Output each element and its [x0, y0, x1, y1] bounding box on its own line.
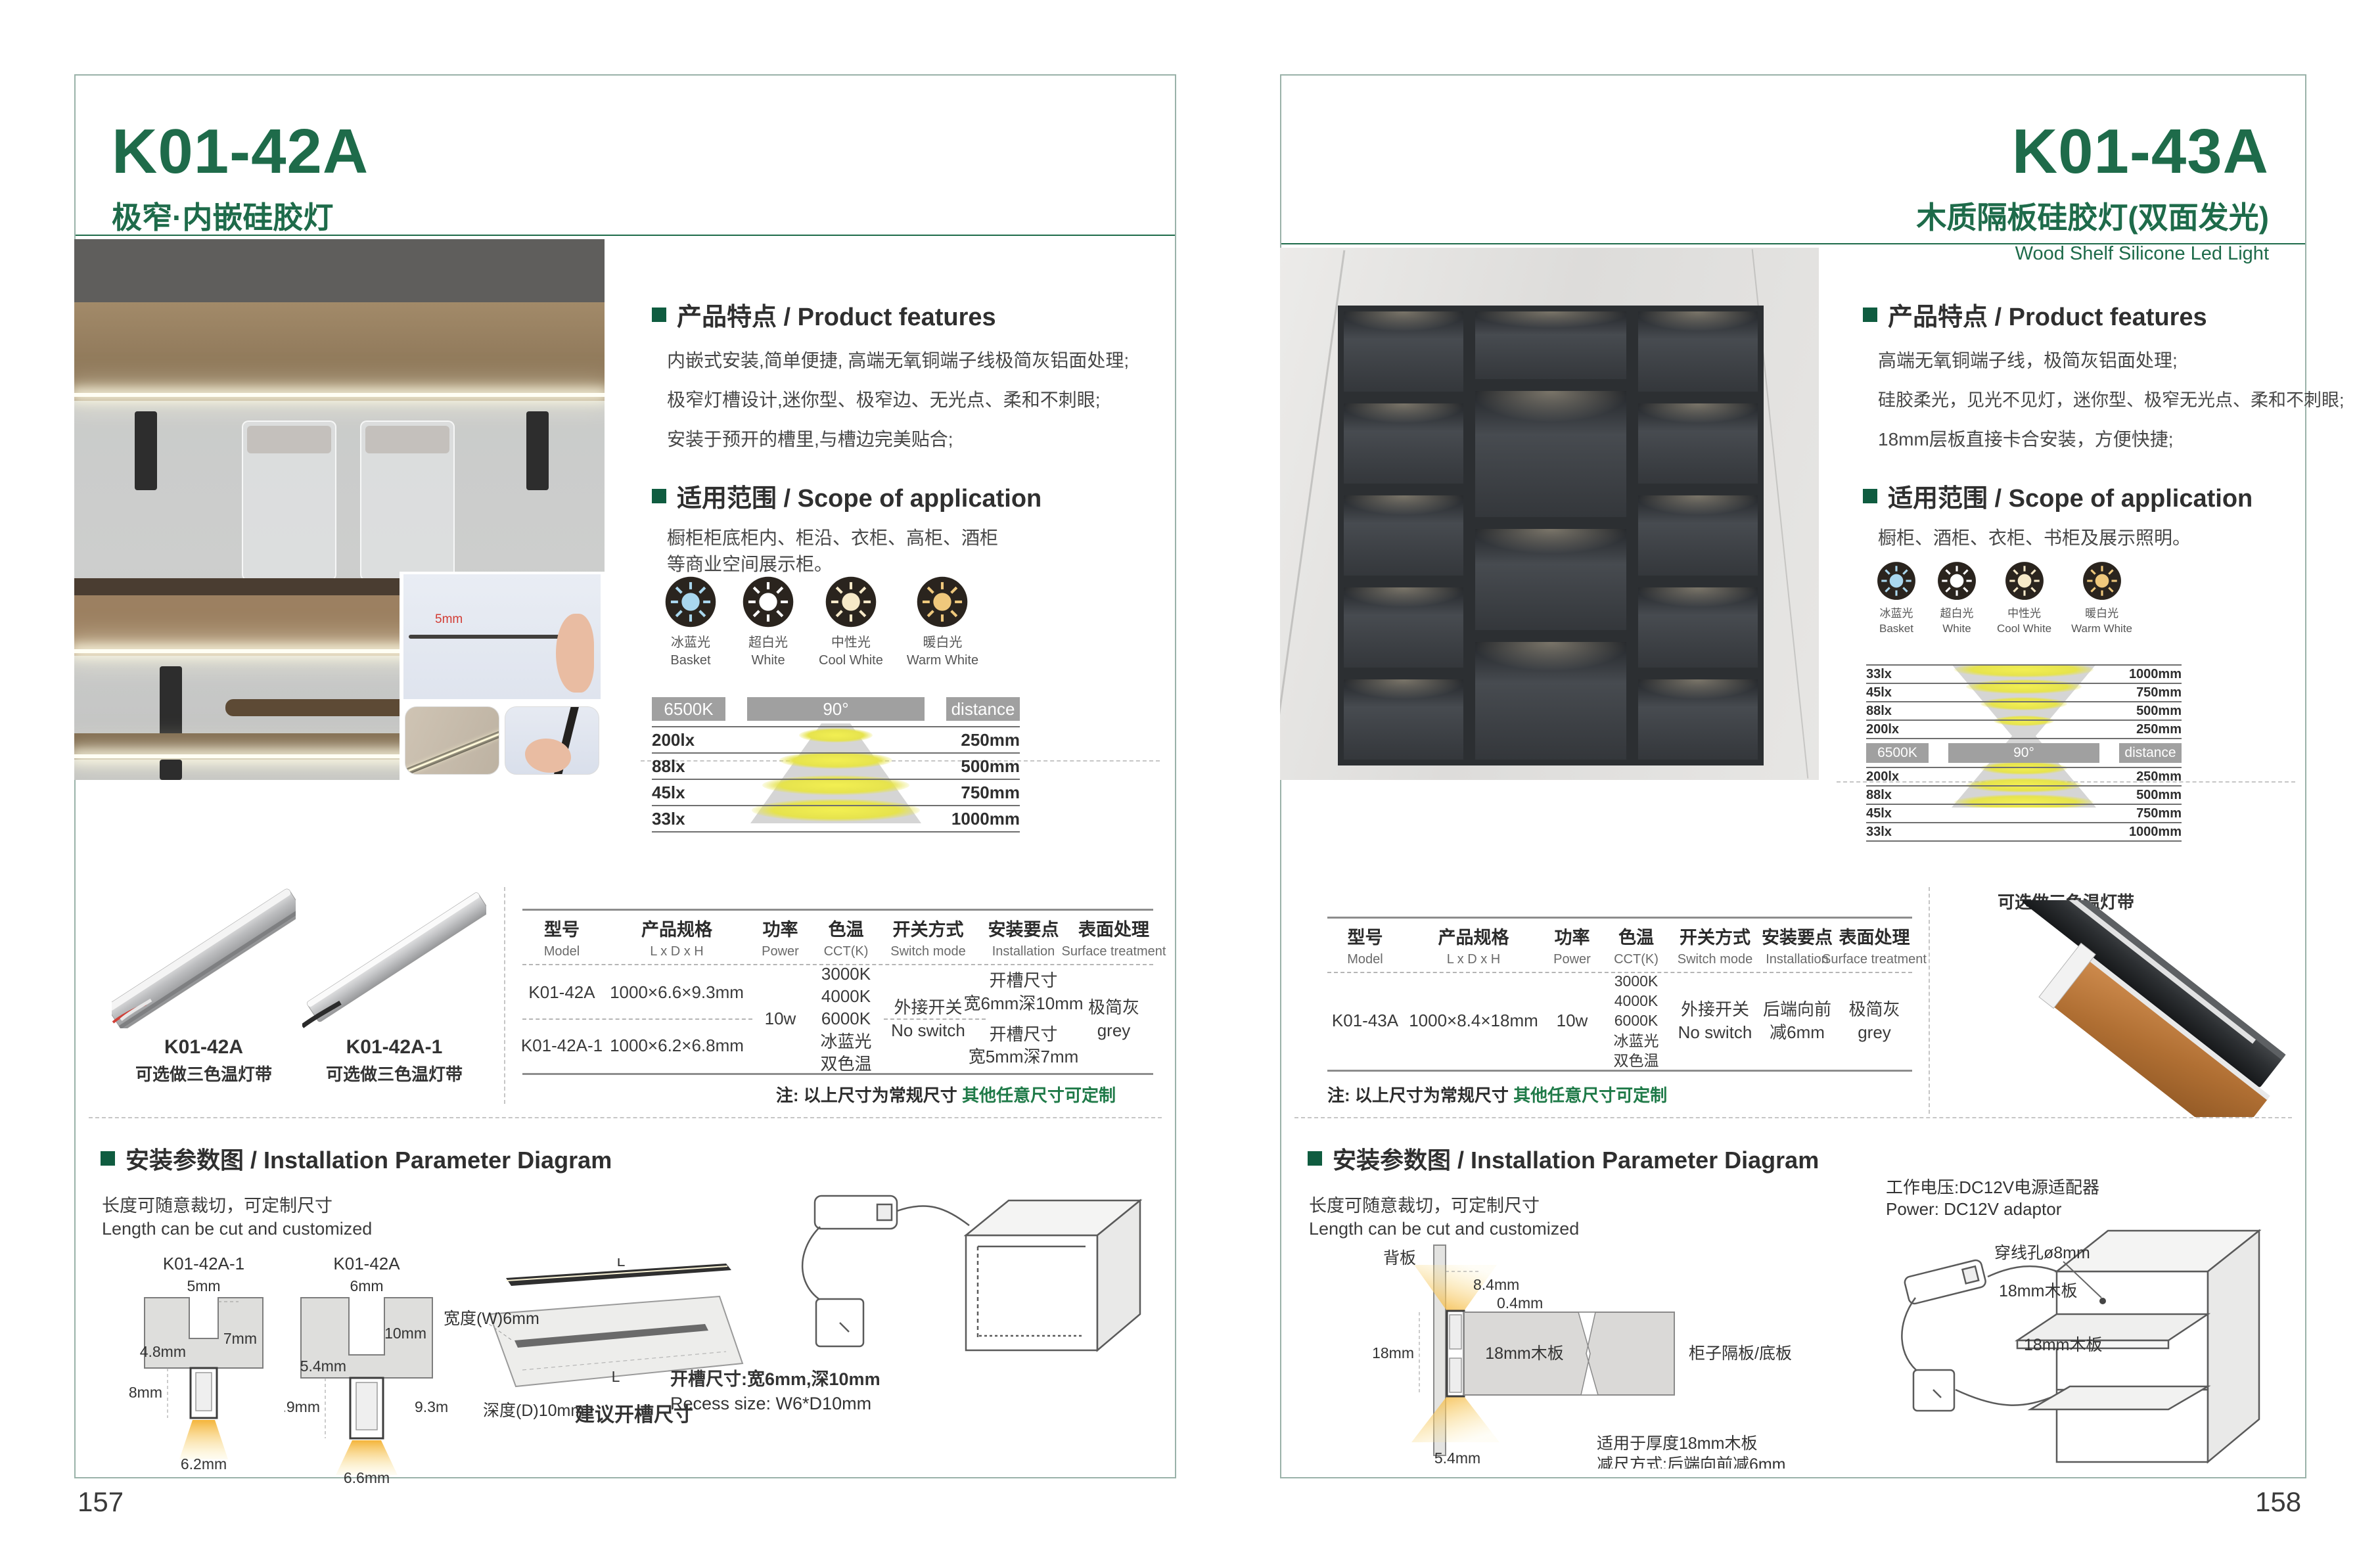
section-bullet-icon	[652, 489, 666, 503]
table-rule	[522, 1073, 1153, 1075]
page-right-k01-43a: K01-43A 木质隔板硅胶灯(双面发光) Wood Shelf Silicon…	[1280, 74, 2306, 1478]
dim-slot-depth: 7mm	[223, 1330, 257, 1347]
dim-lip: 4.8mm	[140, 1343, 186, 1360]
col-model: K01-43A	[1327, 973, 1403, 1068]
diagram-b-title: K01-42A	[285, 1254, 449, 1274]
photometry-row: 33lx 1000mm	[652, 805, 1020, 833]
col-cct: 3000K4000K6000K冰蓝光双色温	[808, 965, 884, 1072]
left-model-title: K01-42A	[112, 120, 449, 183]
cabinet-cell	[1344, 587, 1463, 668]
scope-line: 橱柜、酒柜、衣柜、书柜及展示照明。	[1878, 524, 2191, 550]
product-variant: 可选做三色温灯带	[302, 1061, 486, 1085]
feature-line: 内嵌式安装,简单便捷, 高端无氧铜端子线极简灰铝面处理;	[667, 346, 1129, 373]
section-bullet-icon	[652, 308, 666, 322]
shelf-bracket	[526, 411, 549, 490]
spec-cell: 1000×6.6×9.3mm	[610, 981, 744, 1003]
angle-badge: 90°	[747, 697, 925, 721]
photometry-row: 45lx750mm	[1866, 683, 2182, 701]
col-header: 色温CCT(K)	[1600, 922, 1672, 968]
panel-label: 柜子隔板/底板	[1689, 1344, 1792, 1363]
dim-thickness: 18mm	[1372, 1344, 1414, 1361]
scope-line: 等商业空间展示柜。	[667, 550, 833, 576]
table-header-row: 型号Model 产品规格L x D x H 功率Power 色温CCT(K) 开…	[522, 914, 1153, 960]
distance-value: 500mm	[961, 756, 1020, 777]
right-install-heading: 安装参数图 / Installation Parameter Diagram	[1308, 1141, 1819, 1175]
left-photometry-chart: 6500K 90° distance 200lx 250mm 88lx 500m…	[652, 697, 1020, 833]
lux-value: 33lx	[652, 809, 685, 829]
col-power: 10w	[752, 965, 808, 1072]
photometry-row: 33lx1000mm	[1866, 822, 2182, 842]
led-strip	[74, 393, 605, 397]
cabinet-column	[1338, 306, 1469, 765]
length-label: L	[612, 1368, 620, 1385]
mode-en: Basket	[670, 653, 710, 668]
right-cabinet-diagram: 穿线孔ø8mm 18mm木板 18mm木板	[1860, 1193, 2293, 1469]
cabinet-cell	[1475, 529, 1626, 630]
mode-en: Cool White	[819, 653, 883, 668]
model-cell: K01-42A-1	[521, 1034, 603, 1057]
sun-icon	[2004, 560, 2045, 601]
mode-en: Warm White	[907, 653, 978, 668]
photo-shelf-top	[74, 302, 605, 401]
spec-cell: 1000×6.2×6.8mm	[610, 1034, 744, 1057]
feature-line: 安装于预开的槽里,与槽边完美贴合;	[667, 425, 953, 451]
product-variant: 可选做三色温灯带	[112, 1061, 296, 1085]
right-cross-section-diagram: 背板 8.4mm 0.4mm 18mm 18mm木板 柜子隔板/底板 5.4mm…	[1321, 1232, 1873, 1469]
light-mode-cool-white: 中性光Cool White	[819, 575, 883, 670]
sun-icon	[915, 575, 969, 629]
cut-note-cn: 长度可随意裁切，可定制尺寸	[102, 1191, 332, 1217]
photo-inset: 5mm	[400, 572, 605, 780]
light-mode-warm-white: 暖白光Warm White	[907, 575, 978, 670]
left-table-note: 注: 以上尺寸为常规尺寸 其他任意尺寸可定制	[776, 1082, 1116, 1107]
separator	[504, 887, 505, 1104]
right-product-photo	[1280, 248, 1819, 780]
col-header: 功率Power	[752, 914, 808, 960]
separator	[1929, 887, 1930, 1114]
lux-value: 200lx	[652, 730, 695, 750]
light-mode-warm-white: 暖白光Warm White	[2071, 560, 2132, 637]
cct-badge: 6500K	[1866, 743, 1929, 763]
distance-value: 750mm	[961, 783, 1020, 803]
product-image-k01-42a	[112, 887, 296, 1028]
table-rule	[1327, 917, 1912, 919]
cabinet-column	[1632, 306, 1764, 765]
right-photometry-chart: 33lx1000mm 45lx750mm 88lx500mm 200lx250m…	[1866, 664, 2182, 842]
col-header: 功率Power	[1544, 922, 1600, 968]
distance-value: 250mm	[961, 730, 1020, 750]
light-mode-ice-blue: 冰蓝光Basket	[1876, 560, 1917, 637]
right-scope-heading: 适用范围 / Scope of application	[1863, 478, 2253, 514]
display-cabinet	[1338, 306, 1764, 765]
table-body: K01-43A 1000×8.4×18mm 10w 3000K4000K6000…	[1327, 973, 1912, 1068]
distance-badge: distance	[946, 697, 1020, 721]
light-mode-cool-white: 中性光Cool White	[1997, 560, 2051, 637]
col-header: 开关方式Switch mode	[884, 914, 973, 960]
mode-en: White	[1942, 622, 1971, 635]
photometry-row: 88lx500mm	[1866, 701, 2182, 719]
light-mode-white: 超白光White	[1936, 560, 1977, 637]
distance-badge: distance	[2119, 743, 2182, 763]
col-header: 产品规格L x D x H	[1403, 922, 1544, 968]
angle-badge: 90°	[1948, 743, 2099, 763]
lux-value: 45lx	[652, 783, 685, 803]
sun-icon	[1936, 560, 1977, 601]
dim-bottom-inset: 5.4mm	[1434, 1449, 1480, 1467]
col-surface: 极简灰grey	[1837, 973, 1912, 1068]
dim-slot-width: 6mm	[350, 1277, 383, 1294]
product-name: K01-42A	[112, 1036, 296, 1059]
col-header: 色温CCT(K)	[808, 914, 884, 960]
diagram-k01-42a: 6mm 10mm 5.4mm 8.9mm 9.3mm 6.6mm	[285, 1273, 449, 1483]
left-product-photo: 5mm	[74, 239, 605, 780]
fit-note-1: 适用于厚度18mm木板	[1597, 1434, 1757, 1453]
mode-cn: 暖白光	[2085, 607, 2118, 620]
col-switch: 外接开关No switch	[1672, 973, 1758, 1068]
model-cell: K01-42A	[528, 981, 595, 1003]
cabinet-cell	[1638, 679, 1758, 760]
mode-en: Cool White	[1997, 622, 2051, 635]
left-light-modes: 冰蓝光Basket 超白光White 中性光Cool White 暖白光Warm…	[664, 575, 978, 670]
right-light-modes: 冰蓝光Basket 超白光White 中性光Cool White 暖白光Warm…	[1876, 560, 2132, 637]
thin-light-bar	[409, 635, 566, 639]
cabinet-cell	[1475, 391, 1626, 517]
diagram-k01-42a-1: 5mm 7mm 4.8mm 6.8mm 6.2mm	[128, 1273, 279, 1470]
sun-icon	[741, 575, 795, 629]
separator	[89, 1117, 1162, 1118]
cabinet-cell	[1475, 642, 1626, 760]
shelf-bottom-label: 18mm木板	[2024, 1336, 2102, 1354]
right-title-en: Wood Shelf Silicone Led Light	[1916, 243, 2269, 265]
feature-line: 18mm层板直接卡合安装，方便快捷;	[1878, 425, 2174, 451]
col-surface: 极简灰grey	[1074, 965, 1153, 1072]
mode-cn: 超白光	[748, 635, 788, 650]
photo-ceiling	[74, 239, 605, 302]
groove-strip	[405, 721, 499, 775]
row-divider	[884, 1018, 986, 1020]
right-spec-table: 型号Model 产品规格L x D x H 功率Power 色温CCT(K) 开…	[1327, 917, 1912, 1071]
col-install: 后端向前减6mm	[1758, 973, 1837, 1068]
col-header: 型号Model	[1327, 922, 1403, 968]
dim-lip: 5.4mm	[300, 1358, 346, 1375]
section-bullet-icon	[1308, 1151, 1322, 1166]
mode-en: Basket	[1879, 622, 1913, 635]
scope-line: 橱柜柜底柜内、柜沿、衣柜、高柜、酒柜	[667, 524, 998, 550]
cabinet-cell	[1638, 311, 1758, 392]
row-divider	[522, 1018, 752, 1020]
dim-width: 6.6mm	[344, 1469, 390, 1483]
col-header: 开关方式Switch mode	[1672, 922, 1758, 968]
col-power: 10w	[1544, 973, 1600, 1068]
inset-dim-label: 5mm	[435, 612, 463, 627]
col-install: 开槽尺寸宽6mm深10mm 开槽尺寸宽5mm深7mm	[973, 965, 1074, 1072]
cabinet-cell	[1344, 403, 1463, 484]
dim-slot-width: 5mm	[187, 1277, 220, 1294]
cut-note-en: Length can be cut and customized	[102, 1219, 372, 1239]
dim-gap: 0.4mm	[1497, 1294, 1543, 1312]
photometry-row: 200lx250mm	[1866, 719, 2182, 739]
marble-vein	[1280, 250, 1345, 778]
right-table-note: 注: 以上尺寸为常规尺寸 其他任意尺寸可定制	[1327, 1082, 1667, 1107]
power-cell: 10w	[765, 1007, 796, 1030]
recess-size-en: Recess size: W6*D10mm	[670, 1394, 871, 1414]
col-header: 表面处理Surface treatment	[1837, 922, 1912, 968]
lux-value: 88lx	[652, 756, 685, 777]
col-header: 表面处理Surface treatment	[1074, 914, 1153, 960]
col-header: 产品规格L x D x H	[601, 914, 752, 960]
diagram-a-title: K01-42A-1	[128, 1254, 279, 1274]
fit-note-2: 减尺方式:后端向前减6mm	[1597, 1455, 1786, 1469]
section-bullet-icon	[1863, 489, 1877, 503]
light-mode-white: 超白光White	[741, 575, 795, 670]
mode-cn: 中性光	[831, 635, 871, 650]
photometry-row: 88lx500mm	[1866, 785, 2182, 804]
col-header: 型号Model	[522, 914, 601, 960]
photometry-row: 200lx250mm	[1866, 767, 2182, 785]
table-rule	[522, 909, 1153, 911]
note-highlight: 其他任意尺寸可定制	[1513, 1085, 1667, 1105]
left-features-heading: 产品特点 / Product features	[652, 296, 996, 332]
left-cabinet-diagram	[769, 1173, 1150, 1370]
product-image-k01-42a-1	[302, 887, 486, 1028]
dim-slot-depth: 10mm	[384, 1325, 426, 1342]
mode-cn: 暖白光	[923, 635, 962, 650]
cabinet-cell	[1344, 679, 1463, 760]
left-install-heading: 安装参数图 / Installation Parameter Diagram	[101, 1141, 612, 1175]
inset-thumb-wood	[405, 706, 499, 775]
right-header-rule	[1281, 243, 2305, 244]
distance-value: 1000mm	[951, 809, 1020, 829]
recess-board-diagram: L L 宽度(W)6mm 深度(D)10mm 建议开槽尺寸	[444, 1258, 752, 1455]
left-scope-heading: 适用范围 / Scope of application	[652, 478, 1041, 514]
mode-cn: 冰蓝光	[1879, 607, 1913, 620]
right-title-cn: 木质隔板硅胶灯(双面发光)	[1916, 194, 2269, 237]
feature-line: 硅胶柔光，见光不见灯，迷你型、极窄无光点、柔和不刺眼;	[1878, 386, 2345, 411]
glass-canister	[242, 421, 336, 581]
length-label: L	[617, 1258, 626, 1269]
dim-height: 6.8mm	[128, 1384, 162, 1401]
col-cct: 3000K4000K6000K冰蓝光双色温	[1600, 973, 1672, 1068]
right-model-title: K01-43A	[1916, 120, 2269, 183]
shelf-bracket	[160, 760, 182, 780]
product-name: K01-42A-1	[302, 1036, 486, 1059]
photometry-row: 33lx1000mm	[1866, 664, 2182, 683]
board-depth-label: 深度(D)10mm	[483, 1402, 584, 1420]
mode-en: Warm White	[2071, 622, 2132, 635]
back-panel-label: 背板	[1383, 1249, 1416, 1267]
cabinet-cell	[1475, 311, 1626, 379]
feature-line: 极窄灯槽设计,迷你型、极窄边、无光点、柔和不刺眼;	[667, 386, 1101, 412]
mode-en: White	[751, 653, 785, 668]
cut-note-cn: 长度可随意裁切，可定制尺寸	[1309, 1191, 1540, 1217]
sun-icon	[2082, 560, 2122, 601]
sun-icon	[664, 575, 718, 629]
mode-cn: 冰蓝光	[671, 635, 710, 650]
photometry-row: 45lx 750mm	[652, 779, 1020, 805]
left-spec-table: 型号Model 产品规格L x D x H 功率Power 色温CCT(K) 开…	[522, 909, 1153, 1074]
cabinet-cell	[1344, 495, 1463, 576]
glass-canister	[360, 421, 455, 581]
hand	[556, 614, 594, 693]
dim-top-inset: 8.4mm	[1473, 1276, 1519, 1293]
light-mode-ice-blue: 冰蓝光Basket	[664, 575, 718, 670]
col-header: 安装要点Installation	[973, 914, 1074, 960]
photometry-row: 88lx 500mm	[652, 752, 1020, 779]
dim-height-left: 8.9mm	[285, 1398, 320, 1415]
board-label: 18mm木板	[1485, 1344, 1563, 1363]
dim-width: 6.2mm	[181, 1455, 227, 1470]
shelf-bracket	[135, 411, 157, 490]
note-highlight: 其他任意尺寸可定制	[962, 1085, 1116, 1105]
section-bullet-icon	[101, 1151, 115, 1166]
cabinet-cell	[1638, 495, 1758, 576]
table-rule	[1327, 1070, 1912, 1072]
photometry-row: 200lx 250mm	[652, 726, 1020, 752]
shelf-top-label: 18mm木板	[1999, 1282, 2077, 1300]
page-left-k01-42a: K01-42A 极窄·内嵌硅胶灯 Extremely Narrow. Built…	[74, 74, 1176, 1478]
left-title-cn: 极窄·内嵌硅胶灯	[112, 194, 449, 237]
sun-icon	[824, 575, 878, 629]
cabinet-cell	[1638, 403, 1758, 484]
product-image-k01-43a	[1958, 900, 2300, 1117]
separator	[1294, 1117, 2292, 1118]
wire-hole-label: 穿线孔ø8mm	[1994, 1244, 2090, 1262]
board-width-label: 宽度(W)6mm	[444, 1310, 539, 1328]
led-strip	[405, 723, 499, 774]
cabinet-column	[1469, 306, 1632, 765]
left-header-rule	[76, 235, 1175, 236]
inset-thumb-hand	[505, 706, 599, 775]
cabinet-cell	[1638, 587, 1758, 668]
col-spec: 1000×8.4×18mm	[1403, 973, 1544, 1068]
sun-icon	[1876, 560, 1917, 601]
page-number-158: 158	[2255, 1486, 2301, 1518]
feature-line: 高端无氧铜端子线，极简灰铝面处理;	[1878, 346, 2178, 373]
inset-5mm-photo: 5mm	[403, 574, 601, 699]
table-header-row: 型号Model 产品规格L x D x H 功率Power 色温CCT(K) 开…	[1327, 922, 1912, 968]
page-number-157: 157	[78, 1486, 124, 1518]
cct-badge: 6500K	[652, 697, 725, 721]
mode-cn: 超白光	[1940, 607, 1974, 620]
mode-cn: 中性光	[2007, 607, 2041, 620]
right-features-heading: 产品特点 / Product features	[1863, 296, 2207, 332]
photometry-row: 45lx750mm	[1866, 804, 2182, 822]
cabinet-cell	[1344, 311, 1463, 392]
section-bullet-icon	[1863, 308, 1877, 322]
